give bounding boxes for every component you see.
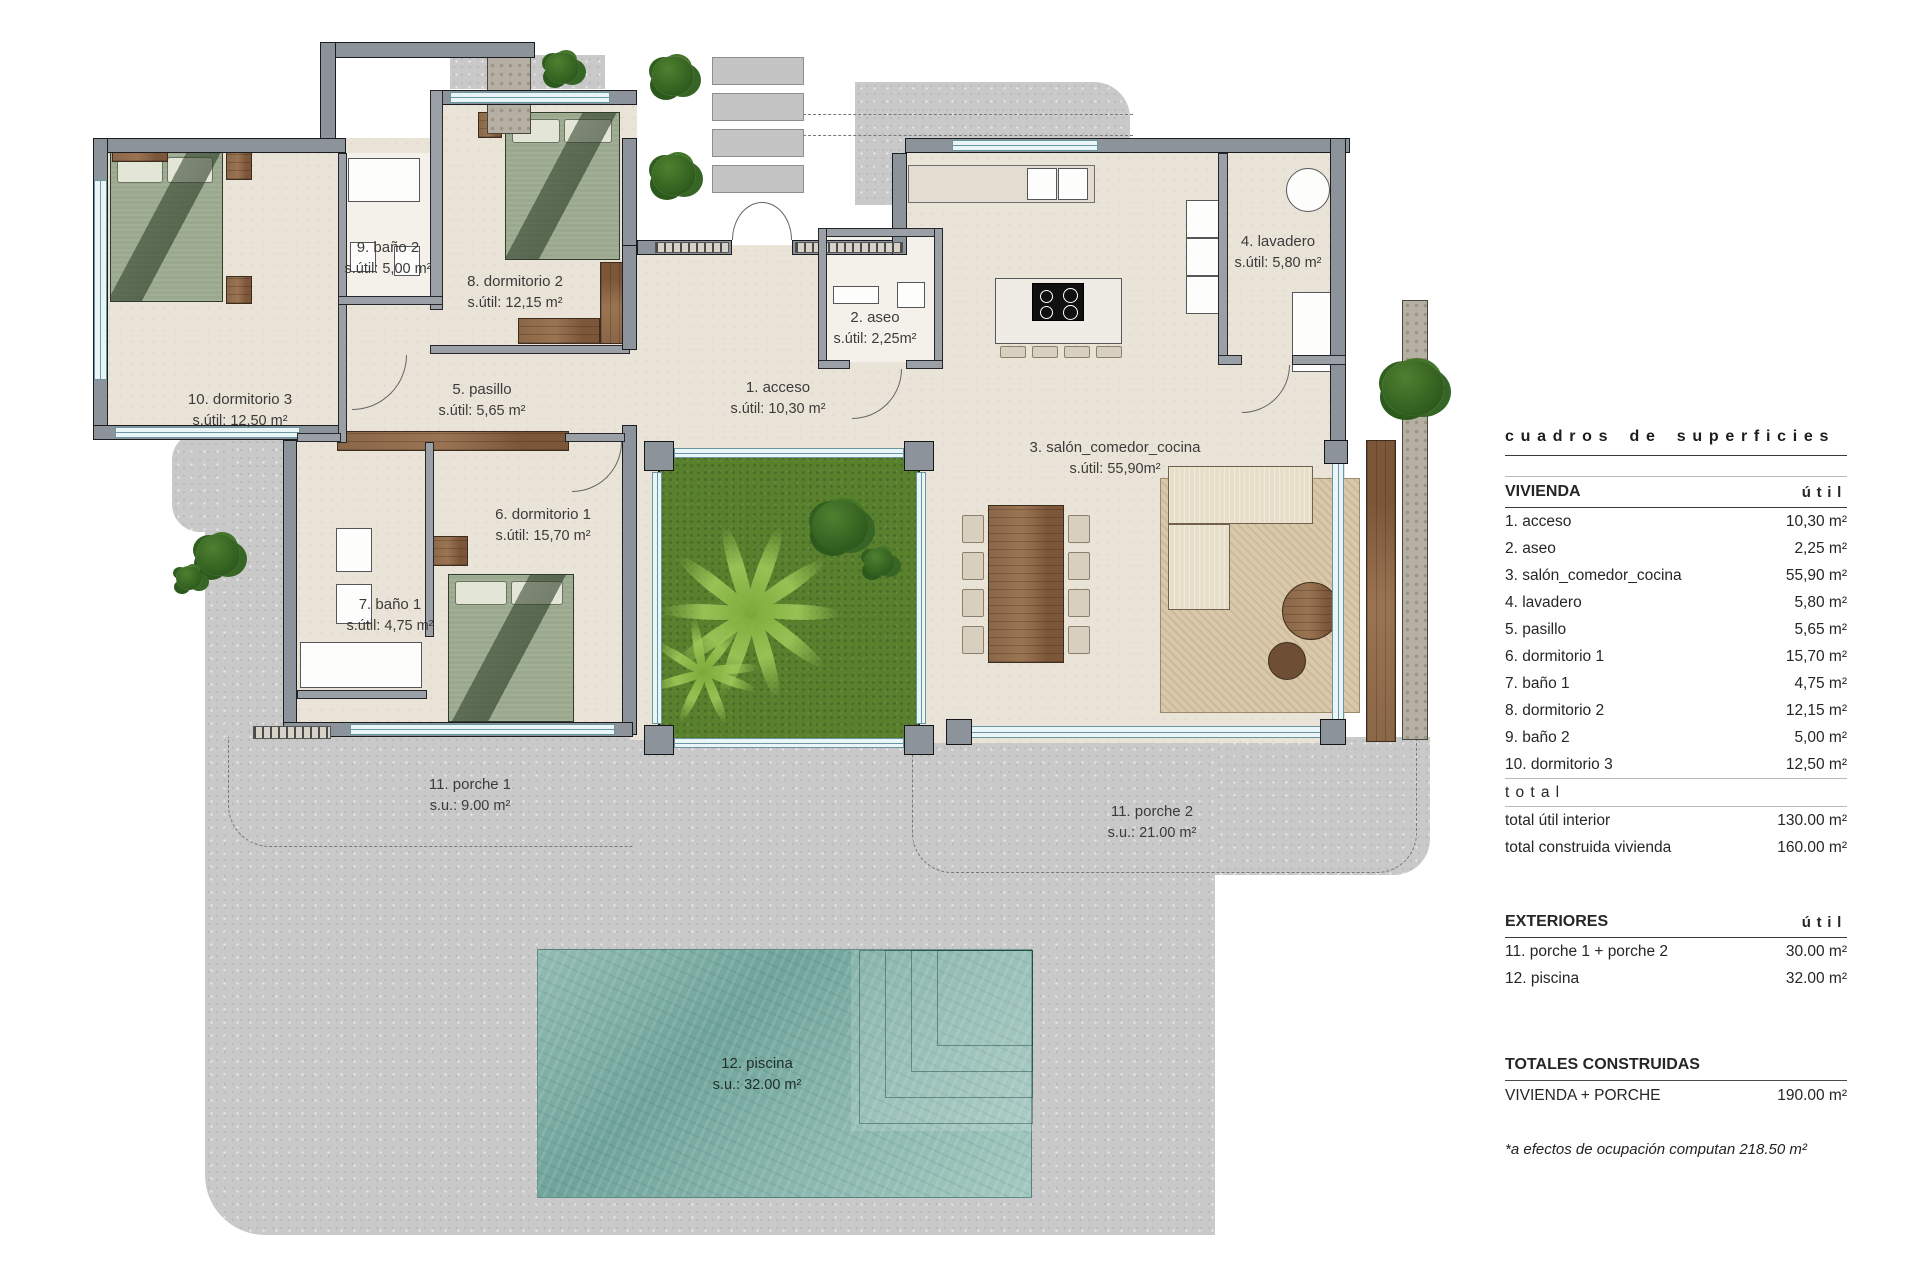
- table-row: 8. dormitorio 212,15 m²: [1505, 697, 1847, 724]
- dining-chair: [962, 552, 984, 580]
- unit-column-header: útil: [1802, 914, 1847, 931]
- table-row: 11. porche 1 + porche 230.00 m²: [1505, 938, 1847, 965]
- room-label-bano-1: 7. baño 1 s.útil: 4,75 m²: [320, 595, 460, 636]
- window: [952, 140, 1098, 151]
- partition-wall: [1218, 355, 1242, 365]
- cooktop: [1032, 283, 1084, 321]
- table-row: 10. dormitorio 312,50 m²: [1505, 751, 1847, 778]
- table-row: 2. aseo2,25 m²: [1505, 535, 1847, 562]
- table-row: 1. acceso10,30 m²: [1505, 508, 1847, 535]
- nightstand: [226, 276, 252, 304]
- row-value: 5,00 m²: [1794, 729, 1847, 747]
- row-label: 2. aseo: [1505, 540, 1556, 558]
- wall-segment: [93, 138, 346, 153]
- hatched-wall: [655, 242, 729, 253]
- vivienda-header-row: VIVIENDA útil: [1505, 477, 1847, 507]
- wall-segment: [283, 440, 297, 735]
- window-sliding: [674, 738, 904, 748]
- wardrobe-dormitorio-1: [337, 431, 569, 451]
- row-label: 12. piscina: [1505, 970, 1579, 988]
- table-row: 12. piscina32.00 m²: [1505, 965, 1847, 992]
- row-value: 15,70 m²: [1786, 648, 1847, 666]
- washbasin: [833, 286, 879, 304]
- stool: [1096, 346, 1122, 358]
- bed-dormitorio-3: [110, 150, 223, 302]
- section-header: TOTALES CONSTRUIDAS: [1505, 1056, 1700, 1074]
- window-sliding: [916, 472, 926, 724]
- bush: [1382, 360, 1444, 416]
- partition-wall: [934, 228, 943, 368]
- divider: [1505, 455, 1847, 456]
- row-value: 12,50 m²: [1786, 756, 1847, 774]
- window-sliding: [674, 448, 904, 458]
- row-label: 10. dormitorio 3: [1505, 756, 1613, 774]
- dining-table: [988, 505, 1064, 663]
- partition-wall: [430, 345, 630, 354]
- room-label-dormitorio-2: 8. dormitorio 2 s.útil: 12,15 m²: [425, 272, 605, 313]
- row-value: 10,30 m²: [1786, 513, 1847, 531]
- window-sliding: [960, 726, 1326, 738]
- pillar: [1320, 719, 1346, 745]
- exteriores-header-row: EXTERIORES útil: [1505, 907, 1847, 937]
- partition-wall: [565, 433, 625, 442]
- row-value: 32.00 m²: [1786, 970, 1847, 988]
- table-row: total útil interior130.00 m²: [1505, 807, 1847, 834]
- row-label: 5. pasillo: [1505, 621, 1566, 639]
- bush: [196, 534, 240, 576]
- entry-step: [712, 57, 804, 85]
- dining-chair: [1068, 515, 1090, 543]
- dining-chair: [962, 589, 984, 617]
- row-label: VIVIENDA + PORCHE: [1505, 1087, 1660, 1105]
- wall-segment: [320, 42, 535, 58]
- courtyard-garden: [658, 453, 920, 742]
- partition-wall: [906, 360, 943, 369]
- row-label: 1. acceso: [1505, 513, 1571, 531]
- dining-chair: [1068, 626, 1090, 654]
- room-label-salon-comedor-cocina: 3. salón_comedor_cocina s.útil: 55,90m²: [1000, 438, 1230, 479]
- floor-plan-sheet: 10. dormitorio 3 s.útil: 12,50 m² 9. bañ…: [0, 0, 1920, 1280]
- partition-wall: [818, 360, 850, 369]
- pillar: [904, 725, 934, 755]
- pillar: [904, 441, 934, 471]
- bed-dormitorio-2: [505, 112, 620, 260]
- table-row: VIVIENDA + PORCHE190.00 m²: [1505, 1081, 1847, 1111]
- kitchen-sink: [1058, 168, 1088, 200]
- area-label-porche-2: 11. porche 2 s.u.: 21.00 m²: [1062, 802, 1242, 843]
- room-label-dormitorio-3: 10. dormitorio 3 s.útil: 12,50 m²: [140, 390, 340, 431]
- room-label-pasillo: 5. pasillo s.útil: 5,65 m²: [402, 380, 562, 421]
- bush: [545, 52, 579, 84]
- nightstand: [226, 152, 252, 180]
- shower: [348, 158, 420, 202]
- bush: [652, 154, 696, 196]
- partition-wall: [818, 228, 943, 237]
- window: [350, 724, 615, 735]
- pool-step: [937, 950, 1033, 1046]
- area-label-porche-1: 11. porche 1 s.u.: 9.00 m²: [380, 775, 560, 816]
- stool: [1064, 346, 1090, 358]
- dresser-dormitorio-2: [518, 318, 600, 344]
- row-value: 160.00 m²: [1777, 839, 1847, 857]
- row-label: 9. baño 2: [1505, 729, 1570, 747]
- table-row: 5. pasillo5,65 m²: [1505, 616, 1847, 643]
- row-label: total construida vivienda: [1505, 839, 1671, 857]
- toilet: [897, 282, 925, 308]
- totales-header-row: TOTALES CONSTRUIDAS: [1505, 1050, 1847, 1080]
- window: [450, 92, 610, 103]
- partition-wall: [297, 433, 341, 442]
- bush: [176, 566, 202, 590]
- shower: [300, 642, 422, 688]
- wall-segment: [622, 245, 637, 350]
- wall-segment: [892, 153, 907, 255]
- window-sliding: [652, 472, 662, 724]
- section-header: EXTERIORES: [1505, 913, 1608, 931]
- total-word: total: [1505, 779, 1847, 806]
- door-arc: [762, 202, 792, 240]
- pillar: [1324, 440, 1348, 464]
- row-label: 6. dormitorio 1: [1505, 648, 1604, 666]
- room-label-acceso: 1. acceso s.útil: 10,30 m²: [698, 378, 858, 419]
- side-table: [1268, 642, 1306, 680]
- surface-table-panel: cuadros de superficies VIVIENDA útil 1. …: [1505, 428, 1847, 1158]
- table-row: 6. dormitorio 115,70 m²: [1505, 643, 1847, 670]
- dining-chair: [962, 626, 984, 654]
- table-row: 3. salón_comedor_cocina55,90 m²: [1505, 562, 1847, 589]
- row-label: 4. lavadero: [1505, 594, 1582, 612]
- table-row: 4. lavadero5,80 m²: [1505, 589, 1847, 616]
- area-label-piscina: 12. piscina s.u.: 32.00 m²: [667, 1054, 847, 1095]
- row-value: 2,25 m²: [1794, 540, 1847, 558]
- stool: [1000, 346, 1026, 358]
- washing-machine: [1286, 168, 1330, 212]
- kitchen-sink: [1027, 168, 1057, 200]
- bed-dormitorio-1: [448, 574, 574, 722]
- panel-title: cuadros de superficies: [1505, 428, 1847, 455]
- unit-column-header: útil: [1802, 484, 1847, 501]
- hatched-wall: [253, 726, 331, 739]
- driveway-dash-line: [803, 114, 1133, 115]
- table-row: total construida vivienda160.00 m²: [1505, 834, 1847, 861]
- room-label-aseo: 2. aseo s.útil: 2,25m²: [815, 308, 935, 349]
- section-header: VIVIENDA: [1505, 483, 1581, 501]
- row-value: 5,65 m²: [1794, 621, 1847, 639]
- wall-segment: [622, 138, 637, 248]
- row-value: 4,75 m²: [1794, 675, 1847, 693]
- window: [94, 180, 107, 380]
- wall-segment: [622, 425, 637, 735]
- partition-wall: [1292, 355, 1346, 365]
- table-row: 7. baño 14,75 m²: [1505, 670, 1847, 697]
- bush: [864, 548, 894, 576]
- entry-step: [712, 165, 804, 193]
- row-value: 130.00 m²: [1777, 812, 1847, 830]
- pillar: [644, 441, 674, 471]
- sofa-chaise: [1168, 524, 1230, 610]
- room-label-dormitorio-1: 6. dormitorio 1 s.útil: 15,70 m²: [453, 505, 633, 546]
- bush: [812, 500, 868, 552]
- row-label: total útil interior: [1505, 812, 1610, 830]
- row-label: 8. dormitorio 2: [1505, 702, 1604, 720]
- driveway-dash-line: [803, 135, 1133, 136]
- row-label: 7. baño 1: [1505, 675, 1570, 693]
- entry-step: [712, 129, 804, 157]
- dining-chair: [1068, 552, 1090, 580]
- dining-chair: [1068, 589, 1090, 617]
- table-row: 9. baño 25,00 m²: [1505, 724, 1847, 751]
- row-label: 3. salón_comedor_cocina: [1505, 567, 1682, 585]
- pillar: [946, 719, 972, 745]
- entry-step: [712, 93, 804, 121]
- row-value: 5,80 m²: [1794, 594, 1847, 612]
- door-arc: [732, 202, 762, 240]
- occupancy-footnote: *a efectos de ocupación computan 218.50 …: [1505, 1141, 1847, 1158]
- dining-chair: [962, 515, 984, 543]
- pillar: [644, 725, 674, 755]
- room-label-lavadero: 4. lavadero s.útil: 5,80 m²: [1208, 232, 1348, 273]
- porch-deck: [1366, 440, 1396, 742]
- row-label: 11. porche 1 + porche 2: [1505, 943, 1668, 961]
- terrain-left-bump: [172, 432, 228, 532]
- stool: [1032, 346, 1058, 358]
- washbasin: [336, 528, 372, 572]
- row-value: 55,90 m²: [1786, 567, 1847, 585]
- hatched-wall: [795, 242, 903, 253]
- partition-wall: [297, 690, 427, 699]
- tall-cabinet: [1186, 276, 1222, 314]
- bush: [652, 56, 694, 96]
- row-value: 12,15 m²: [1786, 702, 1847, 720]
- window-sliding: [1332, 455, 1344, 725]
- row-value: 30.00 m²: [1786, 943, 1847, 961]
- row-value: 190.00 m²: [1777, 1087, 1847, 1105]
- wall-segment: [320, 42, 336, 142]
